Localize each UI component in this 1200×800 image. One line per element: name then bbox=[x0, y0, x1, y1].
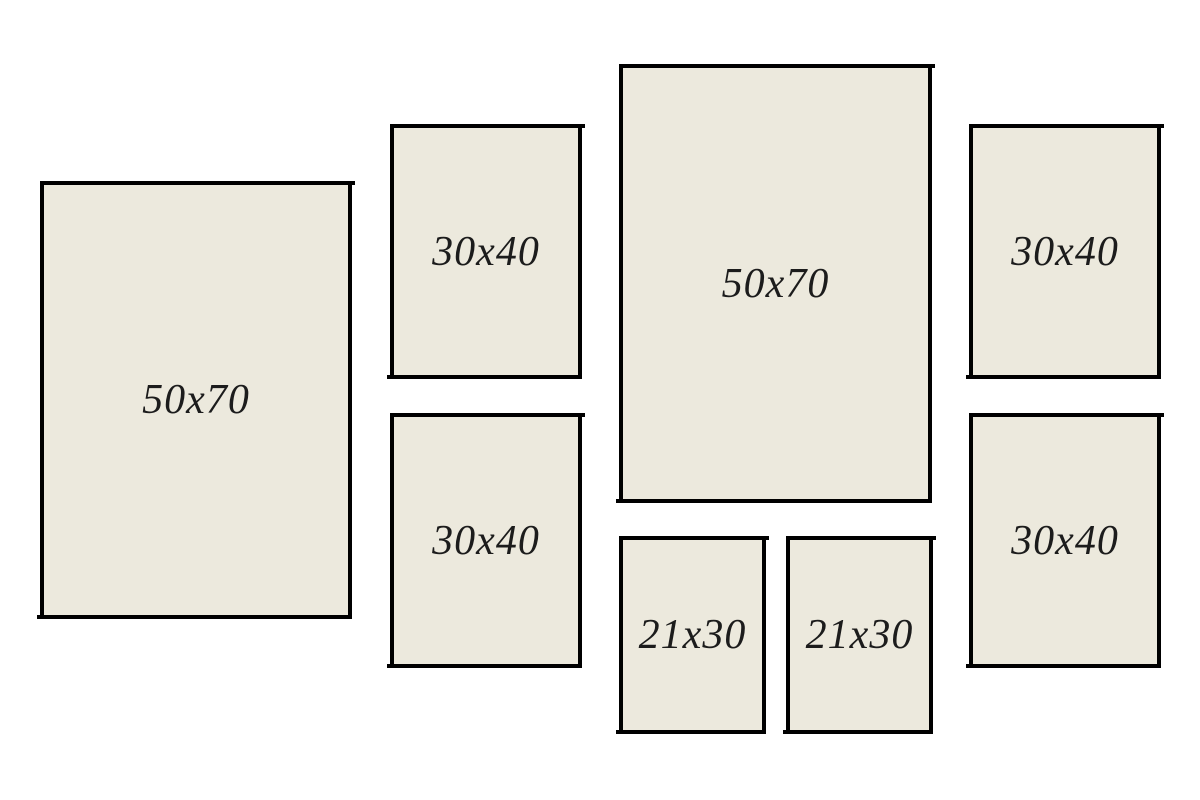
frame-21x30-left: 21x30 bbox=[619, 536, 766, 734]
frame-size-label: 50x70 bbox=[142, 376, 250, 424]
frame-size-label: 30x40 bbox=[432, 517, 540, 565]
frame-30x40-right-bottom: 30x40 bbox=[969, 413, 1161, 668]
poster-size-diagram: 50x70 30x40 30x40 50x70 21x30 21x30 30x4… bbox=[0, 0, 1200, 800]
frame-size-label: 21x30 bbox=[806, 611, 914, 659]
frame-30x40-right-top: 30x40 bbox=[969, 124, 1161, 379]
frame-size-label: 30x40 bbox=[1011, 517, 1119, 565]
frame-size-label: 50x70 bbox=[722, 260, 830, 308]
frame-50x70-center: 50x70 bbox=[619, 64, 932, 503]
frame-21x30-right: 21x30 bbox=[786, 536, 933, 734]
frame-size-label: 21x30 bbox=[639, 611, 747, 659]
frame-size-label: 30x40 bbox=[1011, 228, 1119, 276]
frame-size-label: 30x40 bbox=[432, 228, 540, 276]
frame-50x70-left: 50x70 bbox=[40, 181, 352, 619]
frame-30x40-middle-bottom: 30x40 bbox=[390, 413, 582, 668]
frame-30x40-middle-top: 30x40 bbox=[390, 124, 582, 379]
